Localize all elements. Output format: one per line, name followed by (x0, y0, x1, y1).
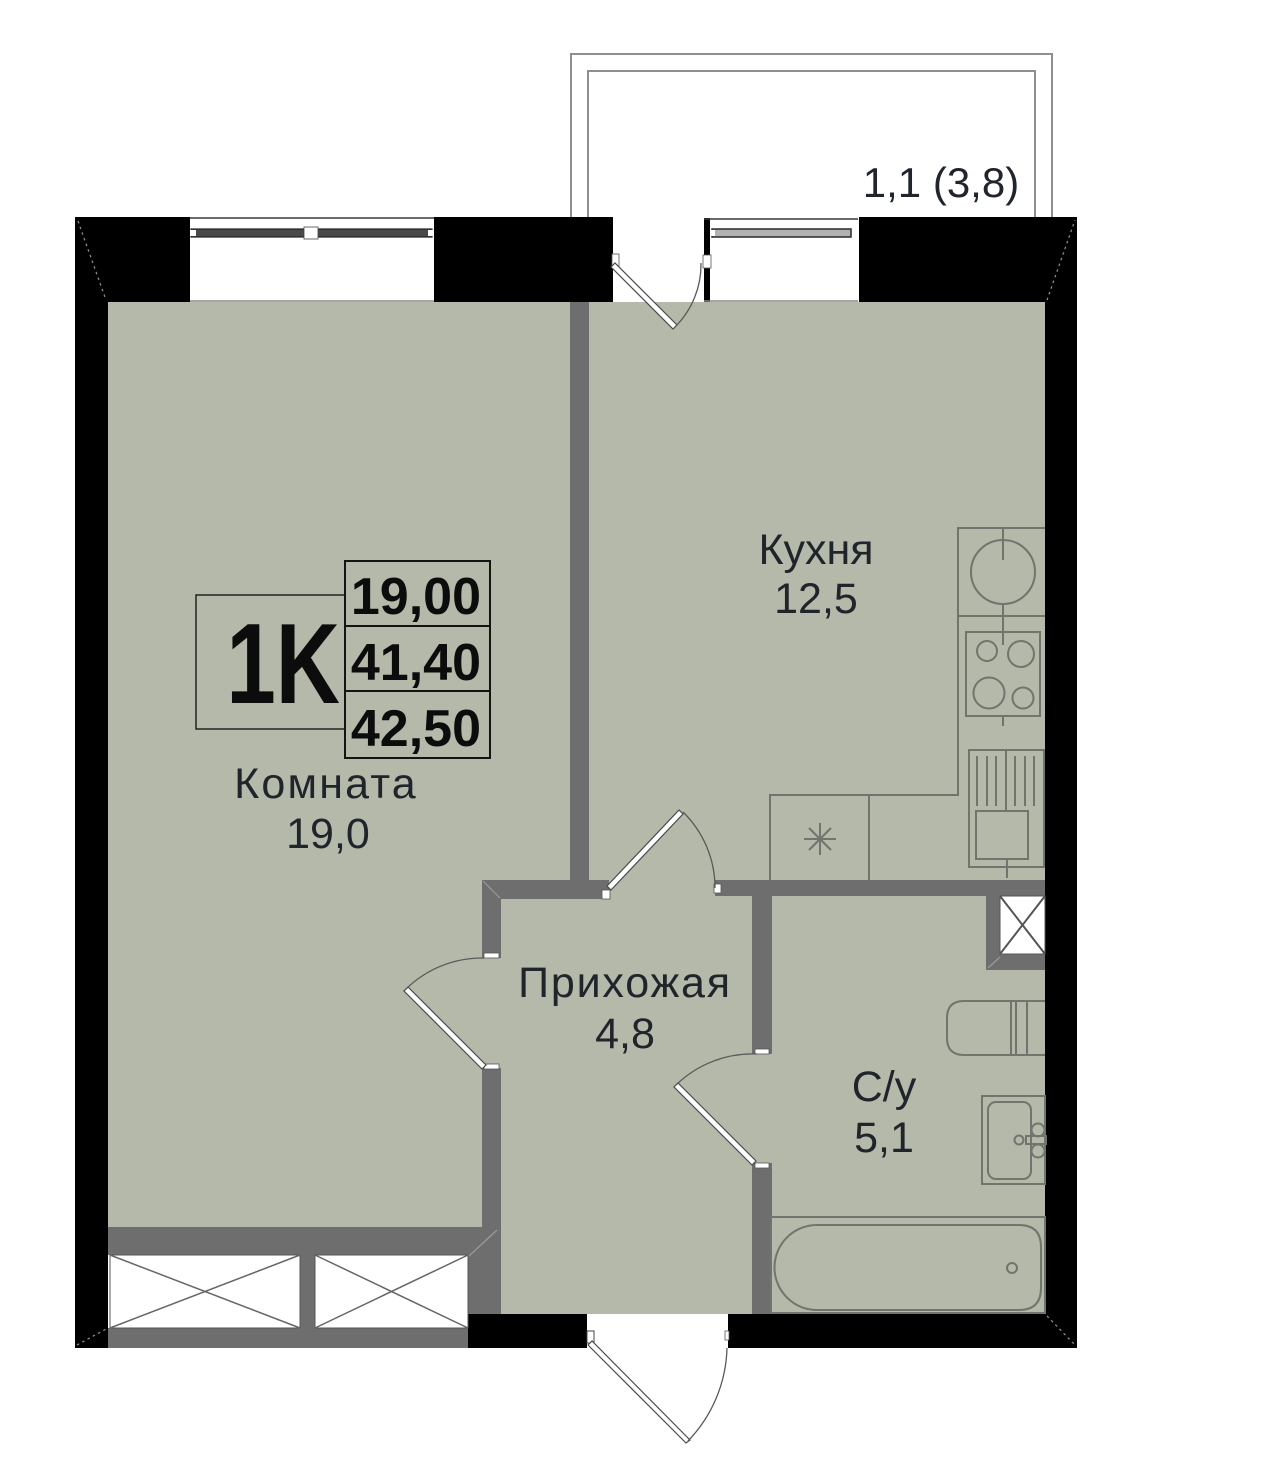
svg-text:42,50: 42,50 (351, 700, 481, 758)
svg-text:1,1 (3,8): 1,1 (3,8) (863, 159, 1019, 206)
svg-text:41,40: 41,40 (351, 634, 481, 692)
svg-text:4,8: 4,8 (595, 1010, 655, 1058)
svg-text:С/у: С/у (852, 1063, 917, 1111)
svg-text:Прихожая: Прихожая (518, 959, 732, 1007)
svg-text:5,1: 5,1 (854, 1114, 914, 1162)
svg-text:Кухня: Кухня (758, 526, 873, 574)
svg-text:19,0: 19,0 (286, 810, 370, 858)
svg-text:12,5: 12,5 (774, 575, 858, 623)
svg-text:19,00: 19,00 (351, 568, 481, 626)
svg-text:Комната: Комната (234, 760, 418, 808)
svg-text:1K: 1K (226, 599, 340, 727)
